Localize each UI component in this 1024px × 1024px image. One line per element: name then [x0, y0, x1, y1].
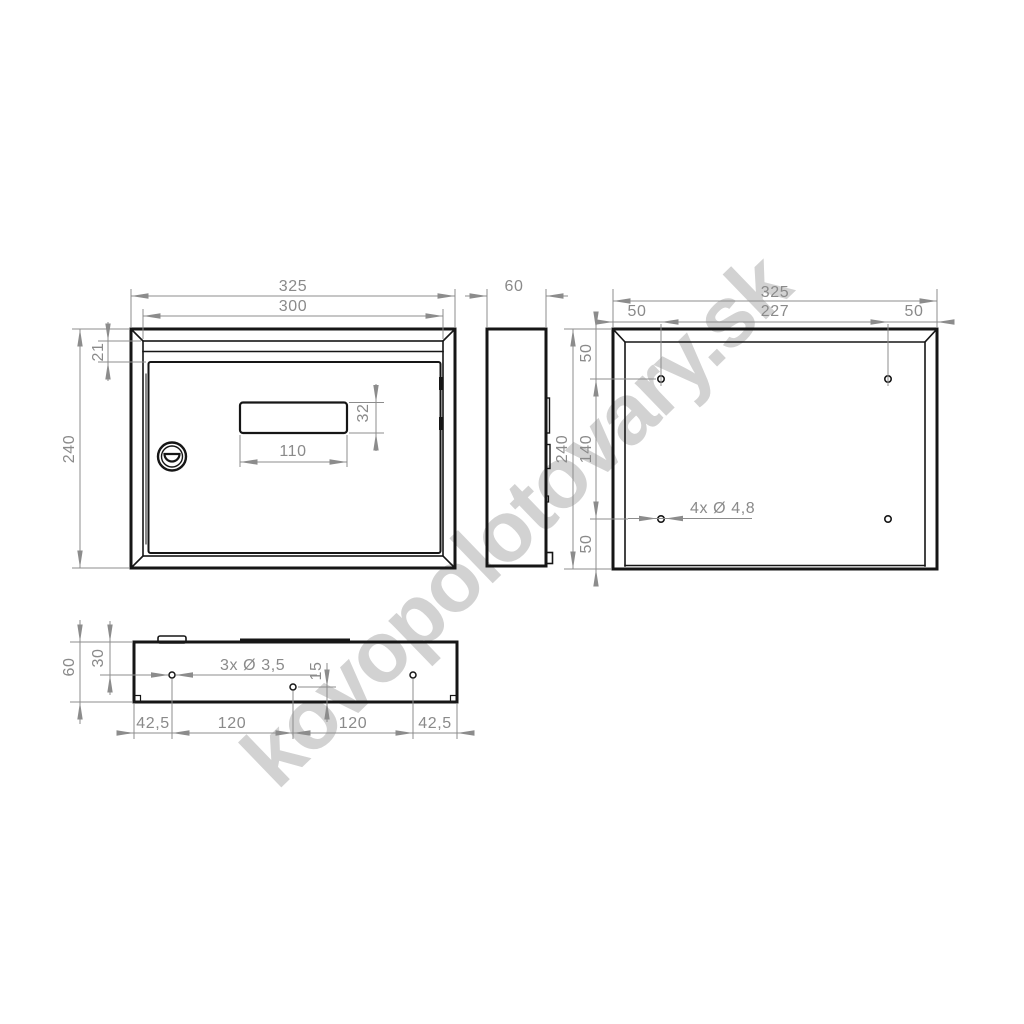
dim-front-door-offset: 21	[90, 343, 107, 362]
dim-bottom-margin-left: 42,5	[136, 715, 170, 732]
dim-back-hole-margin-left: 50	[628, 303, 647, 320]
front-latch-mark-top	[439, 377, 443, 390]
back-holes-note: 4x Ø 4,8	[690, 500, 755, 517]
front-letter-slot	[240, 403, 347, 434]
front-dimensions	[72, 289, 455, 568]
dim-back-hole-spacing: 227	[761, 303, 790, 320]
front-lock-keyhole	[165, 454, 180, 462]
back-hole-bottom-right	[885, 516, 891, 522]
dim-bottom-depth: 60	[61, 658, 78, 677]
dim-bottom-spacing-2: 120	[339, 715, 368, 732]
dim-back-hole-margin-right: 50	[905, 303, 924, 320]
dim-bottom-margin-right: 42,5	[418, 715, 452, 732]
dim-bottom-spacing-1: 120	[218, 715, 247, 732]
bottom-top-bar	[240, 639, 350, 644]
dim-side-depth: 60	[505, 278, 524, 295]
dim-back-width: 325	[761, 284, 790, 301]
technical-drawing: kovopolotovary.sk	[0, 0, 1024, 1024]
watermark-text: kovopolotovary.sk	[224, 235, 810, 805]
bottom-hole-left	[169, 672, 175, 678]
dim-bottom-hole-offset-top: 30	[90, 649, 107, 668]
dim-back-hole-margin-bottom: 50	[578, 535, 595, 554]
dim-front-height: 240	[61, 435, 78, 464]
bottom-holes-note: 3x Ø 3,5	[220, 657, 285, 674]
drawing-page: kovopolotovary.sk	[0, 0, 1024, 1024]
dim-back-hole-spacing-vertical: 140	[578, 435, 595, 464]
dim-back-hole-margin-top: 50	[578, 344, 595, 363]
dim-front-inner-width: 300	[279, 298, 308, 315]
dim-front-slot-height: 32	[355, 404, 372, 423]
dim-front-outer-width: 325	[279, 278, 308, 295]
back-view: 325 50 227 50 240 50 140 50 4x Ø 4,8	[554, 284, 951, 583]
dim-bottom-hole-offset-bottom: 15	[308, 662, 325, 681]
dim-front-slot-width: 110	[279, 443, 306, 460]
front-latch-mark-bottom	[439, 417, 443, 430]
dim-back-height: 240	[554, 435, 571, 464]
front-view: 325 300 240 21 32 110	[61, 278, 455, 568]
